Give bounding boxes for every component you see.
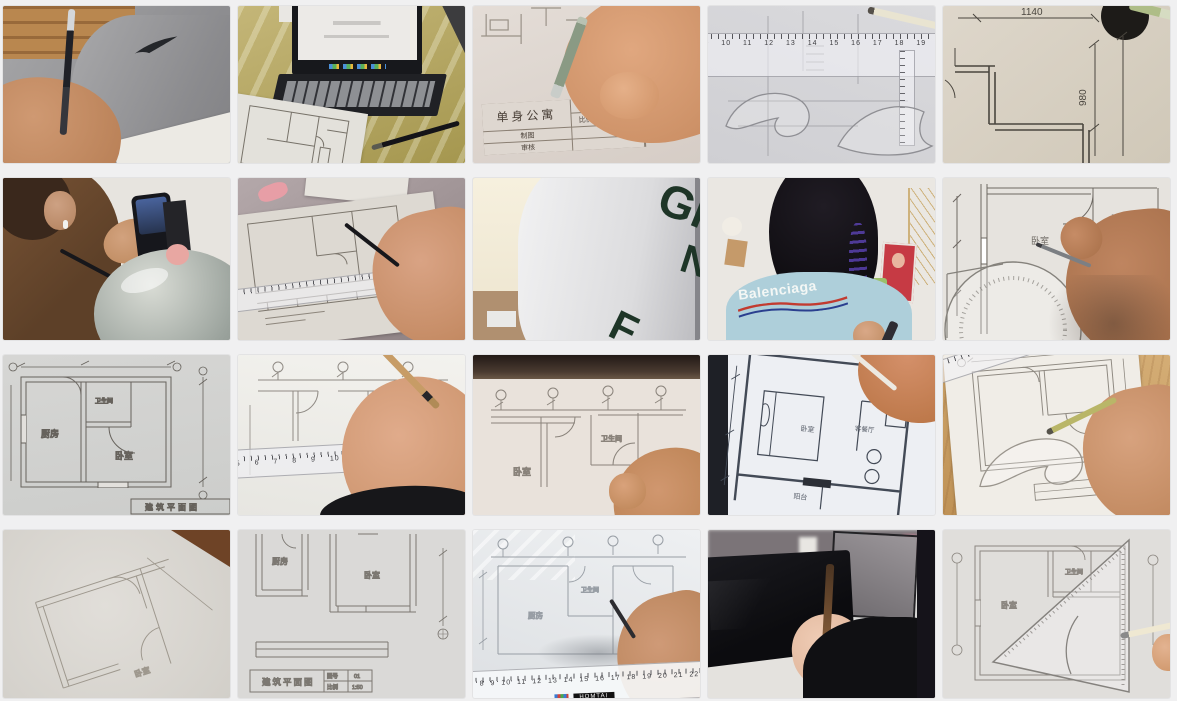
tilted-plan-lines: 卧室 xyxy=(3,530,230,698)
room-label-bedroom: 卧室 xyxy=(133,665,151,679)
photo-balenciaga-shirt[interactable]: Balenciaga xyxy=(708,178,935,340)
screen-document xyxy=(298,6,417,60)
photo-gallery-grid: 单身公寓 图号 01 比例 1:50 制图 审核 9 10 11 12 13 1… xyxy=(0,0,1177,701)
photo-plan-long-ruler[interactable]: 厨房 卫生间 卧室 7 8 9 10 11 12 13 14 15 16 17 … xyxy=(473,530,700,698)
wood-stand xyxy=(724,238,748,266)
photo-french-curve-wood-desk[interactable] xyxy=(943,355,1170,515)
corner-shadow xyxy=(1034,275,1170,340)
floor-plan-drawing: 厨房 卧室 卫生间 建筑平面图 xyxy=(3,355,230,515)
value-drawing-no: 01 xyxy=(354,674,360,680)
photo-laptop-floor-plan-desk[interactable] xyxy=(238,6,465,163)
lamp-sphere xyxy=(722,217,742,236)
value-scale: 1:50 xyxy=(352,685,363,691)
room-label-bedroom: 卧室 xyxy=(115,450,133,461)
photo-hand-wooden-pencil-ruler[interactable]: 5 6 7 8 9 10 11 12 13 TIMENG®BEST xyxy=(238,355,465,515)
room-label-kitchen: 厨房 xyxy=(528,610,543,620)
field-drawing-no: 图号 xyxy=(327,672,339,680)
room-label-kitchen: 厨房 xyxy=(41,428,59,439)
taskbar-icons xyxy=(329,64,386,69)
kettle-highlight xyxy=(118,263,171,298)
brand-logo-colors xyxy=(555,694,569,698)
photo-furnished-floor-plan[interactable]: 卧室 客餐厅 阳台 xyxy=(708,355,935,515)
curled-finger xyxy=(600,72,659,119)
photo-student-gray-nike-sweatshirt[interactable] xyxy=(3,6,230,163)
floor-plan-drawing: 厨房 卧室 建筑平面图 图号 01 比例 1:50 xyxy=(238,530,465,698)
screen-reflection xyxy=(708,577,790,629)
ruler-numbers: 7 8 9 10 11 12 13 14 15 16 17 18 19 20 2… xyxy=(473,668,700,688)
field-scale: 比例 xyxy=(327,683,339,691)
photo-plan-title-block-gray[interactable]: 厨房 卧室 建筑平面图 图号 01 比例 1:50 xyxy=(238,530,465,698)
plan-ink-lines: 1140 980 xyxy=(943,6,1170,163)
dim-top-label: 1140 xyxy=(1021,7,1043,18)
kettle-flower xyxy=(166,244,189,265)
room-label-dining: 客餐厅 xyxy=(854,423,875,434)
earbud xyxy=(63,220,68,229)
room-label-bath: 卫生间 xyxy=(581,586,599,594)
room-label-balcony: 阳台 xyxy=(793,491,808,501)
room-label-bath: 卫生间 xyxy=(601,434,622,443)
room-label-bedroom: 卧室 xyxy=(800,424,815,434)
knuckle xyxy=(609,473,645,508)
title-block-label: 建筑平面图 xyxy=(145,502,200,512)
room-label-bedroom: 卧室 xyxy=(513,466,531,477)
photo-brown-hoodie-phone-kettle[interactable] xyxy=(3,178,230,340)
photo-pencil-floor-plan[interactable]: 厨房 卧室 卫生间 建筑平面图 xyxy=(3,355,230,515)
photo-plan-on-desk-hand[interactable]: 卫生间 卧室 xyxy=(473,355,700,515)
photo-french-curve-ruler[interactable]: 9 10 11 12 13 14 15 16 17 18 19 20 21 22 xyxy=(708,6,935,163)
dim-side-label: 980 xyxy=(1078,89,1089,106)
face-on-card xyxy=(892,252,905,268)
nike-swoosh-icon xyxy=(132,34,198,58)
room-label-bedroom: 卧室 xyxy=(364,570,380,580)
photo-dark-desk-monitor[interactable] xyxy=(708,530,935,698)
photo-white-shirt-back[interactable]: GI N F xyxy=(473,178,700,340)
french-curve-templates xyxy=(708,6,935,163)
ruler-brand-chip: HOMTAI xyxy=(574,692,615,698)
white-box-on-desk xyxy=(487,311,517,327)
photo-plan-closeup-dimensions[interactable]: 1140 980 xyxy=(943,6,1170,163)
photo-title-block-green-pen[interactable]: 单身公寓 图号 01 比例 1:50 制图 审核 xyxy=(473,6,700,163)
photo-set-square-on-plan[interactable]: 卫生间 卧室 xyxy=(943,530,1170,698)
laptop-screen xyxy=(292,6,421,75)
sheet-title: 单身公寓 xyxy=(482,100,571,132)
room-label-kitchen: 厨房 xyxy=(272,556,288,566)
dark-jacket-edge xyxy=(917,530,935,698)
title-block-label: 建筑平面图 xyxy=(262,677,315,687)
keyboard-keys xyxy=(282,80,436,106)
photo-protractor-template-plan[interactable]: 卧室 卫生间 xyxy=(943,178,1170,340)
face xyxy=(44,191,76,230)
room-label-bath: 卫生间 xyxy=(95,397,113,405)
set-square-protractor xyxy=(943,530,1170,698)
photo-tilted-pencil-plan[interactable]: 卧室 xyxy=(3,530,230,698)
photo-hands-drawing-with-ruler[interactable] xyxy=(238,178,465,340)
pink-eraser xyxy=(257,180,290,205)
